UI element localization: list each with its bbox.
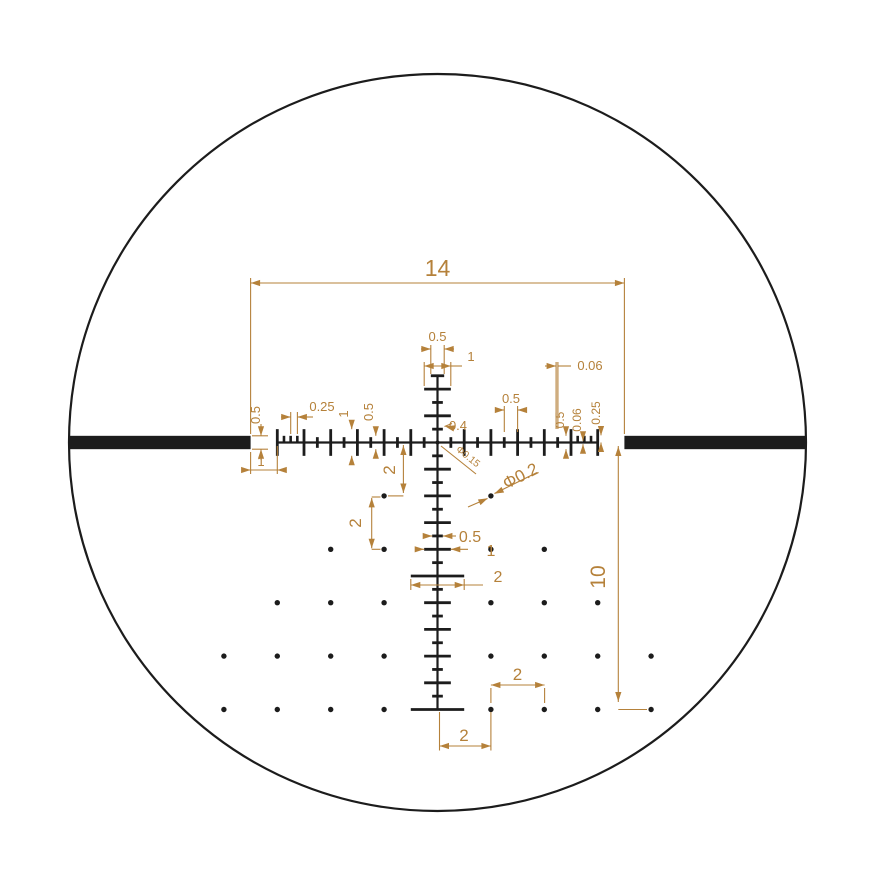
holdover-dot (648, 653, 653, 658)
holdover-dot (381, 547, 386, 552)
holdover-dot (381, 653, 386, 658)
dim-stroke-top: 0.06 (577, 358, 602, 373)
dim-dot-gap-bottom: 2 (459, 726, 468, 745)
dim-post-height: 0.5 (248, 406, 263, 424)
dim-drop-10: 10 (587, 565, 610, 588)
dim-width-14: 14 (425, 255, 451, 281)
holdover-dot (542, 547, 547, 552)
holdover-dot (648, 707, 653, 712)
holdover-dot (381, 600, 386, 605)
dim-drop-2-second: 2 (346, 518, 365, 527)
holdover-dot (595, 707, 600, 712)
holdover-dot (275, 707, 280, 712)
dim-quarter-right-rot: 0.25 (589, 401, 603, 425)
holdover-dot (542, 707, 547, 712)
dim-vtick-half: 0.5 (459, 529, 481, 546)
dim-half-right-rot: 0.5 (553, 411, 567, 428)
left-post (69, 436, 251, 449)
dim-half-left: 0.5 (361, 403, 376, 421)
holdover-dot (488, 600, 493, 605)
right-post (624, 436, 806, 449)
dim-top-half: 0.5 (428, 329, 446, 344)
dim-half-right: 0.5 (502, 391, 520, 406)
dim-stroke-right-rot: 0.06 (570, 408, 584, 432)
holdover-dot (328, 707, 333, 712)
holdover-dot (542, 653, 547, 658)
dim-vtick-two: 2 (494, 569, 503, 586)
holdover-dot (221, 653, 226, 658)
holdover-dot (488, 707, 493, 712)
holdover-dot (595, 653, 600, 658)
dim-small-tick-04: 0.4 (449, 418, 467, 433)
holdover-dot (328, 547, 333, 552)
dim-drop-2-first: 2 (380, 465, 399, 474)
holdover-dot (275, 600, 280, 605)
holdover-dot (328, 653, 333, 658)
dim-top-one: 1 (467, 349, 474, 364)
holdover-dot (275, 653, 280, 658)
holdover-dot (221, 707, 226, 712)
holdover-dot (328, 600, 333, 605)
holdover-dot (595, 600, 600, 605)
reticle-diagram-canvas: 140.510.2510.50.510.060.50.50.060.250.4Φ… (0, 0, 876, 876)
dim-vtick-one: 1 (487, 543, 496, 560)
dim-post-gap: 1 (257, 454, 264, 469)
holdover-dot (381, 493, 386, 498)
holdover-dot (381, 707, 386, 712)
reticle-diagram: 140.510.2510.50.510.060.50.50.060.250.4Φ… (0, 0, 876, 876)
dim-dot-gap-right: 2 (513, 665, 522, 684)
holdover-dot (488, 493, 493, 498)
dim-quarter-left: 0.25 (309, 399, 334, 414)
dim-one-left: 1 (336, 410, 351, 417)
holdover-dot (488, 653, 493, 658)
holdover-dot (542, 600, 547, 605)
